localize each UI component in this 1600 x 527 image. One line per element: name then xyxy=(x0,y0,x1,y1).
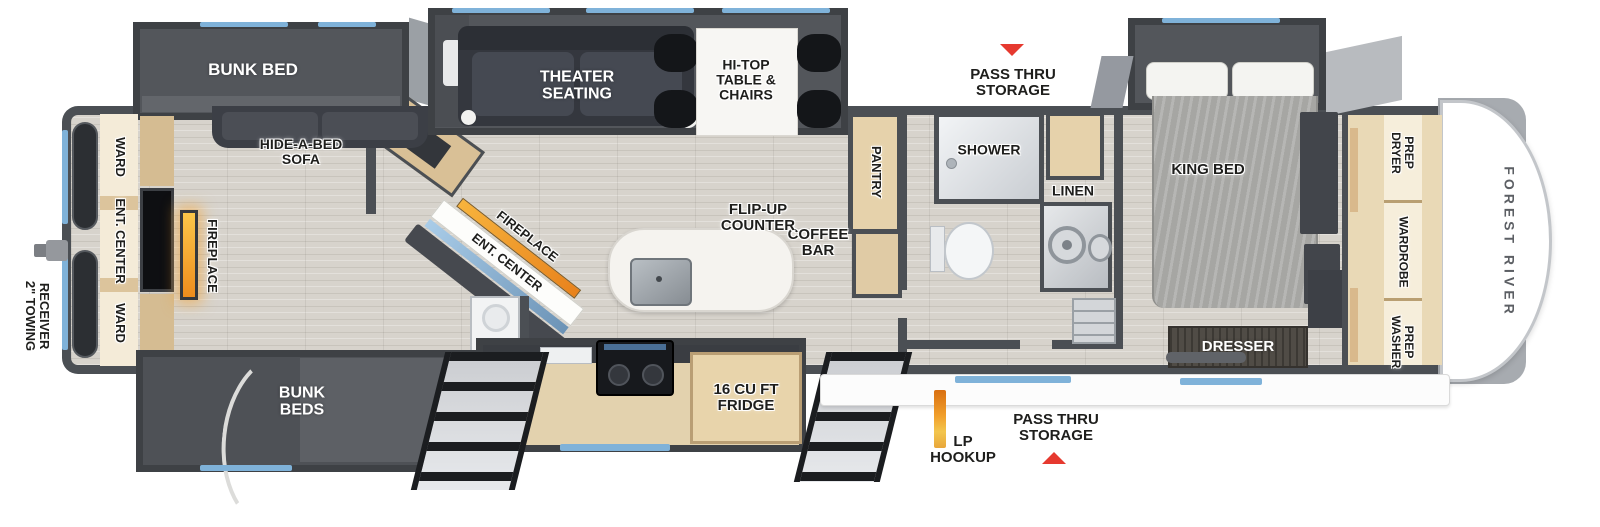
front-cap xyxy=(1440,100,1552,382)
floorplan: FOREST RIVER DRYER PREP WARDROBE WASHER … xyxy=(0,0,1600,527)
rear-tv xyxy=(140,188,174,292)
fridge-label: 16 CU FT FRIDGE xyxy=(713,382,778,414)
underbody-band xyxy=(820,374,1450,406)
closet-divider xyxy=(1384,200,1422,203)
linen-closet xyxy=(1046,112,1104,180)
pantry-label: PANTRY xyxy=(869,146,883,198)
rear-window xyxy=(72,122,98,230)
washer-prep-label: WASHER PREP xyxy=(1389,316,1415,369)
bedroom-steps xyxy=(1072,298,1116,344)
hitop-chair xyxy=(797,34,841,72)
pass-thru-arrow-up-icon xyxy=(1042,452,1066,464)
island-sink xyxy=(630,258,692,306)
coffee-bar-cabinet xyxy=(852,230,902,298)
pass-thru-bottom-label: PASS THRU STORAGE xyxy=(1013,412,1099,444)
dryer-prep-label: DRYER PREP xyxy=(1389,132,1415,174)
hitop-chair xyxy=(797,90,841,128)
king-bed-label: KING BED xyxy=(1171,162,1244,178)
cupholder xyxy=(461,110,476,125)
fireplace-rear-label: FIREPLACE xyxy=(205,219,219,293)
hitop-table-label: HI-TOP TABLE & CHAIRS xyxy=(716,57,776,102)
sink-drain xyxy=(1062,240,1072,250)
closet-divider xyxy=(1384,298,1422,301)
window-strip xyxy=(722,8,830,13)
theater-seating-label: THEATER SEATING xyxy=(540,69,614,104)
pass-thru-arrow-down-icon xyxy=(1000,44,1024,56)
stove-glint xyxy=(604,344,666,350)
bath-wall xyxy=(898,340,1020,349)
window-strip xyxy=(200,465,292,471)
window-strip xyxy=(1162,18,1280,23)
towing-receiver-label: 2" TOWING RECEIVER xyxy=(23,281,51,351)
window-strip xyxy=(452,8,550,13)
closet-handle xyxy=(1350,288,1358,362)
hitop-chair xyxy=(654,34,698,72)
slide-side-shade xyxy=(1326,36,1402,116)
pass-thru-top-label: PASS THRU STORAGE xyxy=(970,67,1056,99)
window-strip xyxy=(318,22,376,27)
nightstand xyxy=(1308,270,1342,328)
window-strip xyxy=(560,444,670,451)
flip-up-counter-label: FLIP-UP COUNTER xyxy=(721,202,795,234)
burner xyxy=(608,364,630,386)
bedroom-wardrobe-cabinet xyxy=(1300,112,1338,234)
window-strip xyxy=(586,8,694,13)
sink-basin-small xyxy=(1088,234,1112,262)
toilet-tank xyxy=(930,226,945,272)
hide-a-bed-label: HIDE-A-BED SOFA xyxy=(260,137,342,167)
brand-logo: FOREST RIVER xyxy=(1501,166,1516,317)
window-strip xyxy=(1180,378,1262,385)
lp-hookup-label: LP HOOKUP xyxy=(930,434,996,466)
towing-receiver-arm xyxy=(46,240,68,261)
closet-handle xyxy=(1350,128,1358,212)
rear-cabinet xyxy=(140,116,174,186)
hitop-chair xyxy=(654,90,698,128)
pillow xyxy=(1146,62,1228,100)
bed-step-rug xyxy=(1166,352,1246,363)
bunk-beds-label: BUNK BEDS xyxy=(279,385,325,420)
toilet xyxy=(944,222,994,280)
burner xyxy=(642,364,664,386)
rear-window-strip xyxy=(62,256,68,350)
water-heater xyxy=(482,304,510,332)
pillow xyxy=(1232,62,1314,100)
sink-faucet xyxy=(656,276,662,282)
window-strip xyxy=(200,22,288,27)
coffee-bar-label: COFFEE BAR xyxy=(788,227,849,259)
ward-top-label: WARD xyxy=(113,137,127,177)
king-bed xyxy=(1152,96,1318,308)
fireplace-icon xyxy=(180,210,198,300)
window-strip xyxy=(955,376,1071,383)
shower-drain xyxy=(946,158,957,169)
rear-window-strip xyxy=(62,130,68,224)
linen-label: LINEN xyxy=(1052,183,1094,198)
bunk-bed-label: BUNK BED xyxy=(208,61,298,79)
wardrobe-label: WARDROBE xyxy=(1397,216,1410,287)
shower-label: SHOWER xyxy=(958,142,1021,157)
rear-window xyxy=(72,250,98,358)
ward-bottom-label: WARD xyxy=(113,303,127,343)
ent-center-rear-label: ENT. CENTER xyxy=(113,198,127,283)
